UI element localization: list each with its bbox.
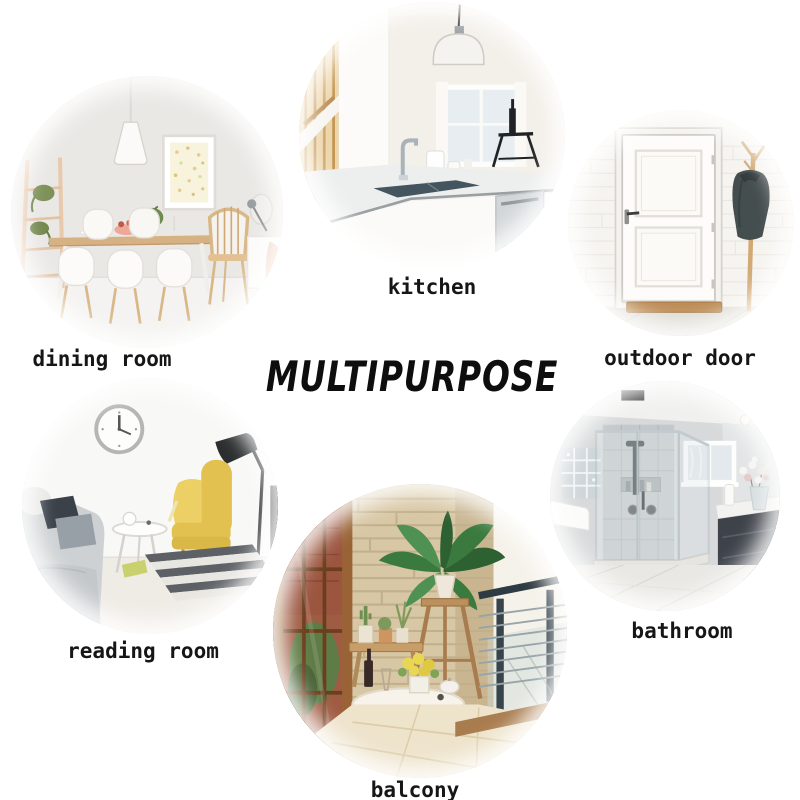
shower-enclosure xyxy=(594,425,709,570)
outdoor-door-photo xyxy=(568,110,794,336)
balcony-label: balcony xyxy=(305,779,525,800)
wall-art xyxy=(163,136,215,209)
gray-pillow xyxy=(55,514,96,550)
reading-room-photo xyxy=(22,378,278,634)
recessed-light xyxy=(740,415,750,425)
kitchen-photo xyxy=(299,2,565,268)
bathroom-floor xyxy=(550,565,780,611)
poster-title: MULTIPURPOSE xyxy=(178,354,646,400)
window-bar xyxy=(270,486,278,558)
balcony-scene xyxy=(273,484,567,778)
entry-door xyxy=(615,128,721,309)
door-lock xyxy=(625,209,630,224)
kitchen-label: kitchen xyxy=(322,276,542,298)
wall-clock xyxy=(96,406,142,452)
dining-room-scene xyxy=(11,76,283,348)
door-handle xyxy=(627,213,639,214)
dining-room-photo xyxy=(11,76,283,348)
poster: dining room kitchen outdoor door reading… xyxy=(0,0,800,800)
reading-room-label: reading room xyxy=(33,640,253,662)
bathroom-label: bathroom xyxy=(572,620,792,642)
bathroom-scene xyxy=(550,381,780,611)
balcony-photo xyxy=(273,484,567,778)
doormat xyxy=(627,302,722,312)
reading-room-scene xyxy=(22,378,278,634)
outdoor-door-scene xyxy=(568,110,794,336)
glass-block-window xyxy=(562,448,601,499)
bathroom-photo xyxy=(550,381,780,611)
kitchen-scene xyxy=(299,2,565,268)
